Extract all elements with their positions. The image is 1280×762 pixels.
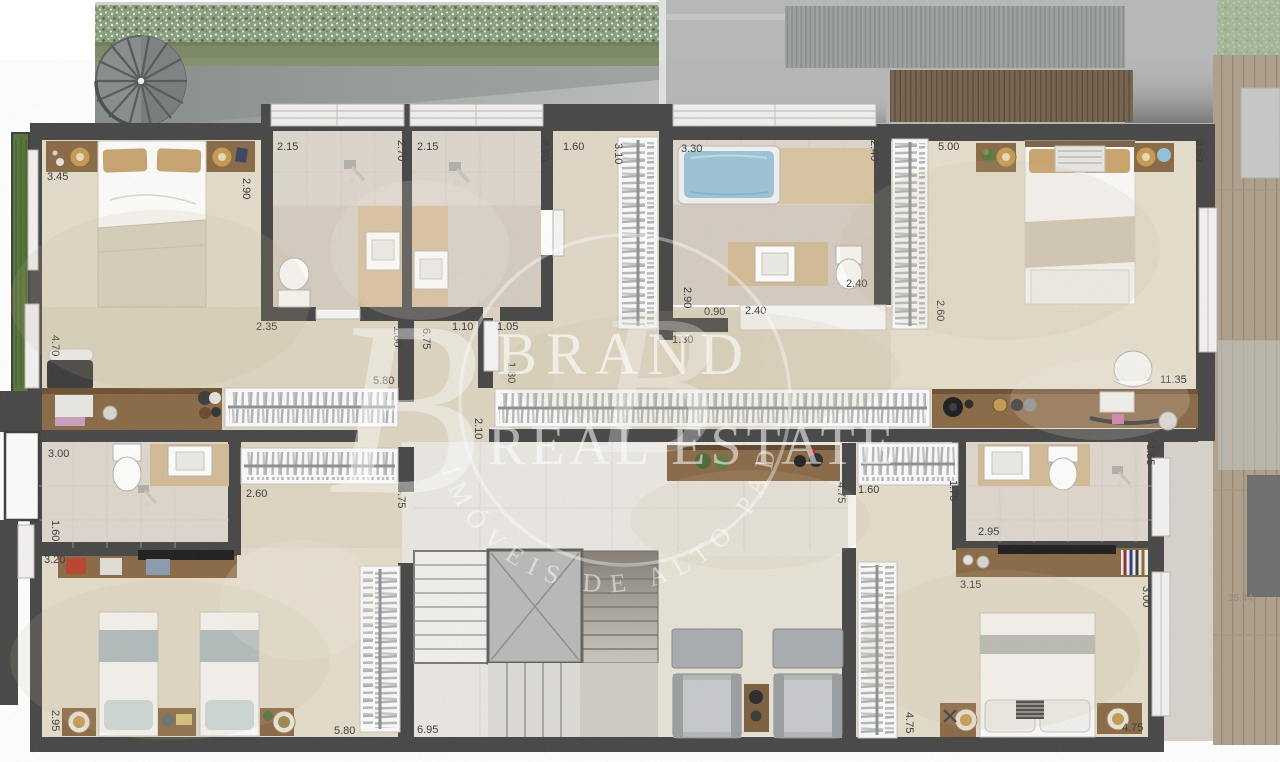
svg-text:REAL ESTATE: REAL ESTATE xyxy=(488,415,899,477)
svg-text:15.44: 15.44 xyxy=(1228,593,1253,604)
svg-text:BRAND: BRAND xyxy=(497,321,752,387)
